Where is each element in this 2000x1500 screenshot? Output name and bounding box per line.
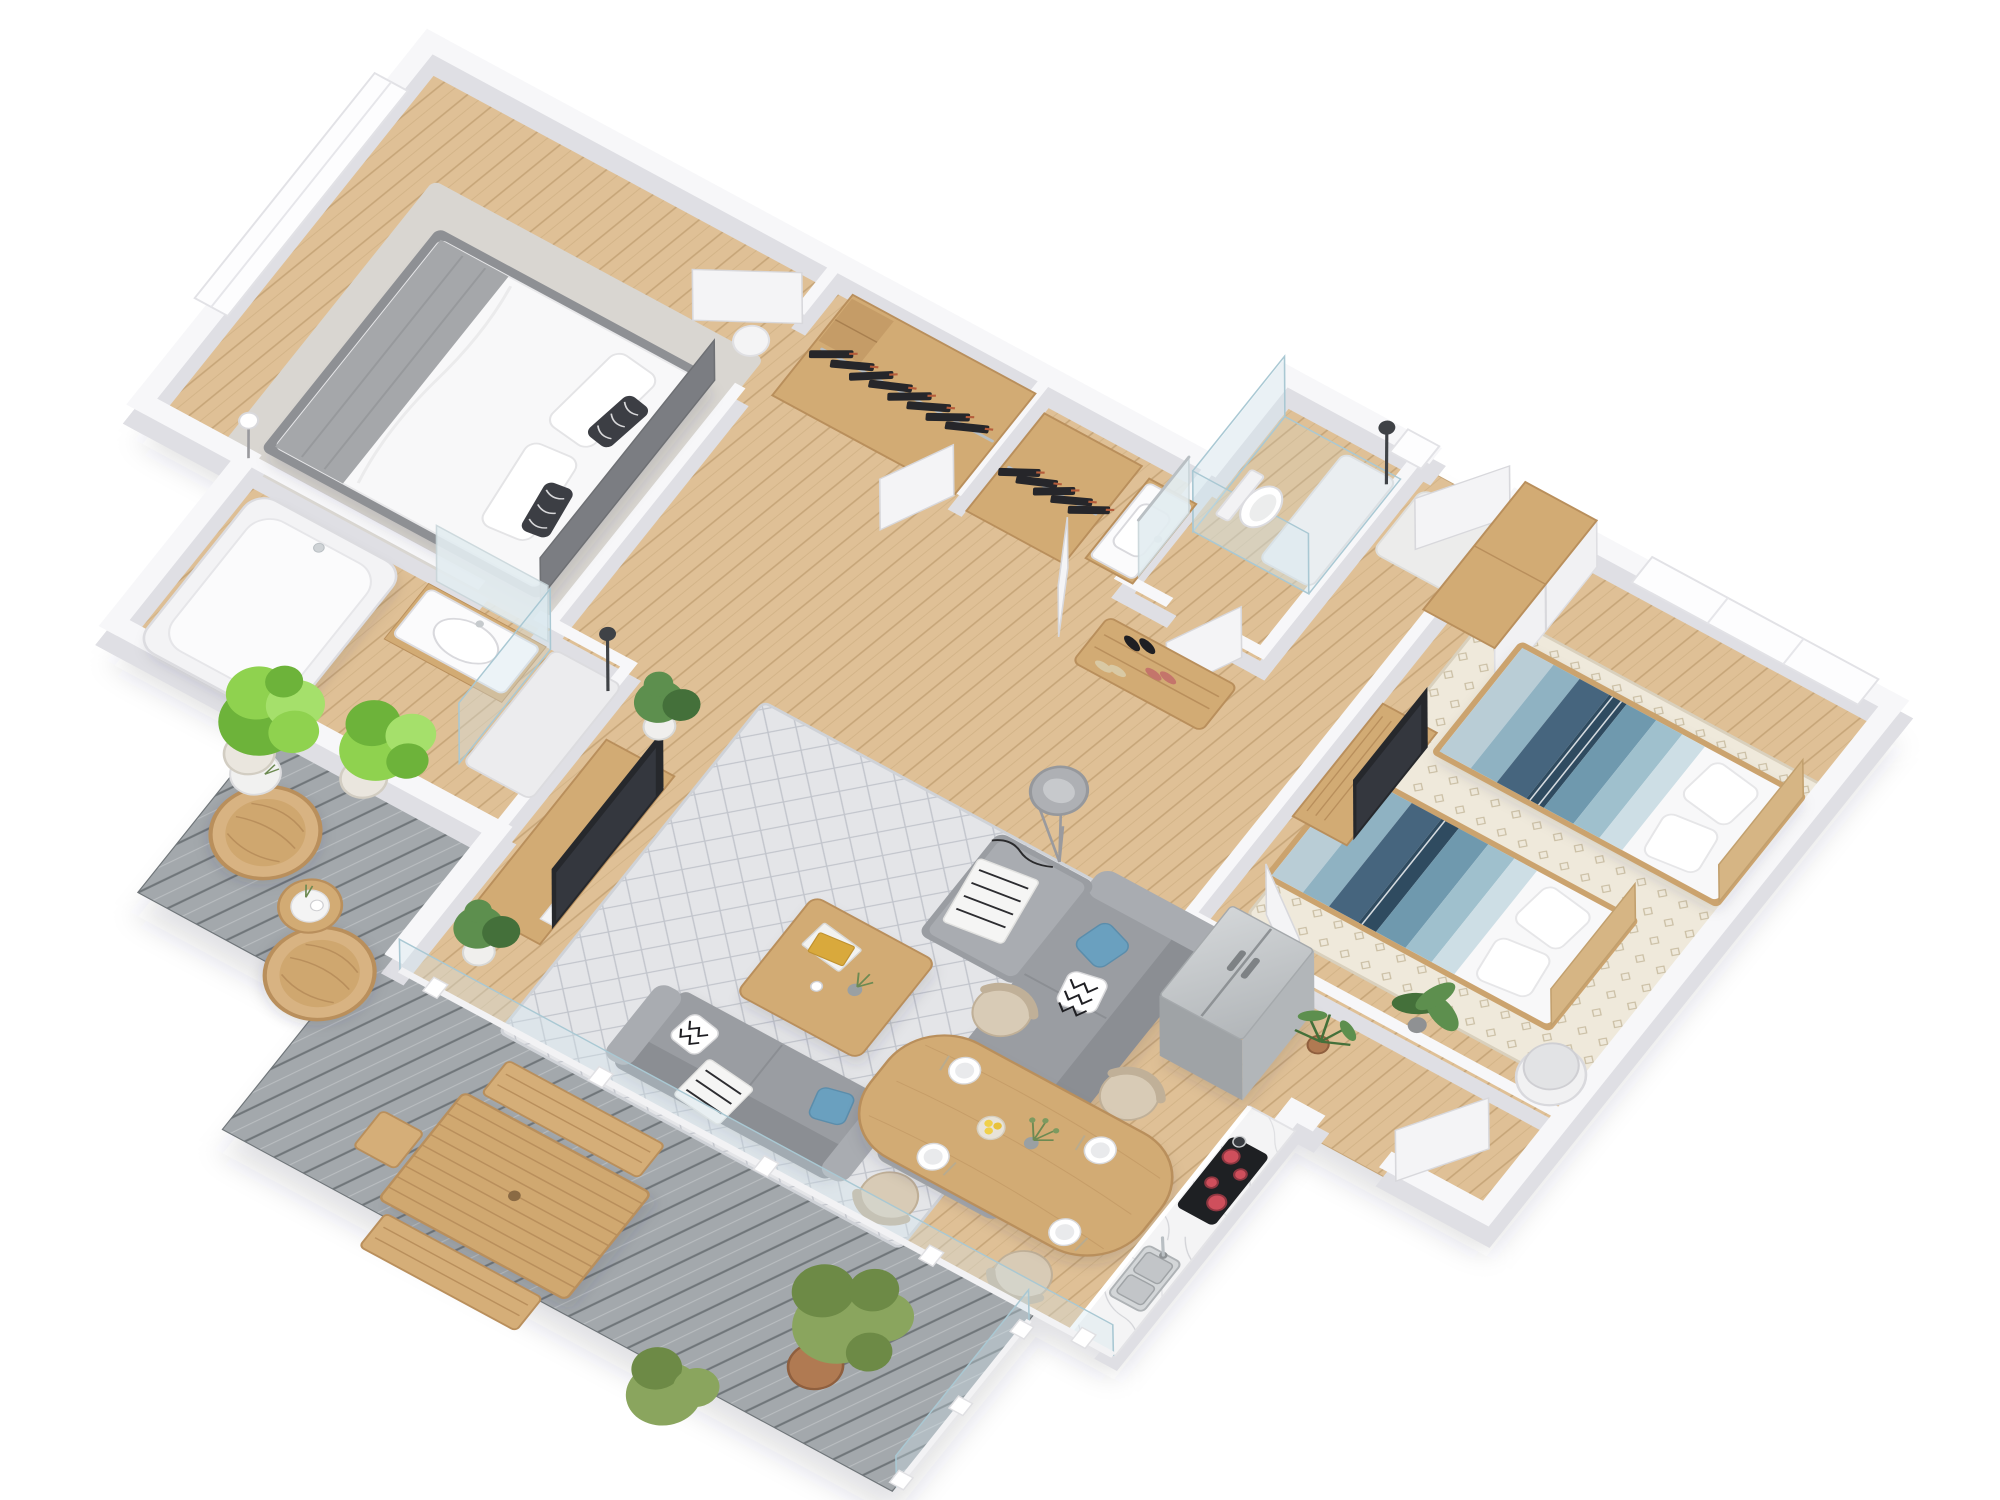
floor-plan-svg xyxy=(0,0,2000,1500)
floor-plan-stage xyxy=(0,0,2000,1500)
